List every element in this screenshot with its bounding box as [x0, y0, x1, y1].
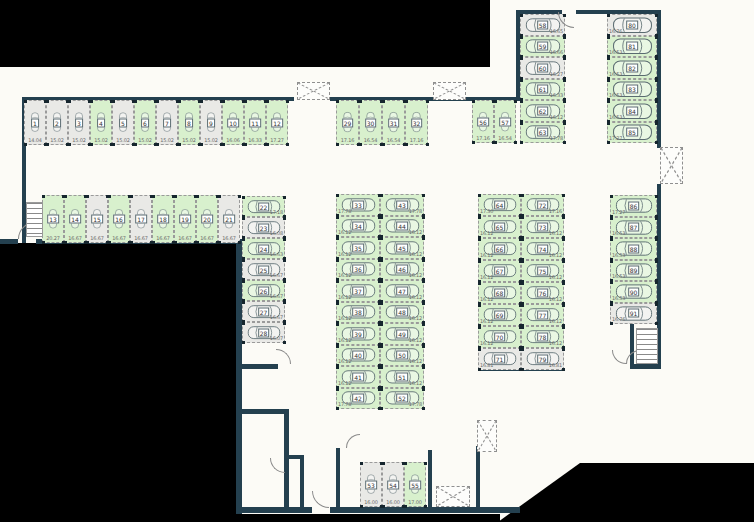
stall-dimension-label: 16.67: [90, 236, 103, 241]
stall-number: 65: [494, 223, 506, 232]
column-marker: [380, 237, 383, 240]
stall-number: 41: [352, 372, 364, 381]
parking-stall-68[interactable]: 6816.12: [478, 282, 521, 304]
column-marker: [655, 57, 658, 60]
column-marker: [472, 141, 475, 144]
parking-stall-27: 2716.67: [242, 301, 285, 322]
stall-dimension-label: 15.02: [72, 138, 85, 143]
stall-number: 72: [537, 201, 549, 210]
parking-stall-40[interactable]: 4016.12: [336, 345, 380, 367]
stall-number: 44: [396, 222, 408, 231]
stall-number: 35: [352, 243, 364, 252]
wall-segment: [630, 364, 661, 369]
column-marker: [244, 100, 247, 103]
parking-stall-85[interactable]: 8517.27: [607, 122, 657, 144]
door-swing-icon: [346, 434, 360, 448]
stall-dimension-label: 16.12: [480, 275, 493, 280]
stall-number: 58: [537, 20, 549, 29]
column-marker: [405, 143, 408, 146]
parking-stall-31[interactable]: 3116.54: [382, 100, 405, 145]
column-marker: [607, 141, 610, 144]
stall-number: 83: [626, 85, 638, 94]
stall-dimension-label: 16.07: [270, 336, 283, 341]
stall-dimension-label: 16.12: [338, 252, 351, 257]
parking-stall-44[interactable]: 4416.12: [380, 216, 424, 238]
parking-stall-20[interactable]: 2016.67: [196, 195, 218, 243]
column-marker: [422, 302, 425, 305]
column-marker: [655, 122, 658, 125]
column-marker: [521, 282, 524, 285]
stall-number: 80: [626, 20, 638, 29]
parking-stall-37[interactable]: 3716.12: [336, 280, 380, 302]
stall-number: 70: [494, 333, 506, 342]
column-marker: [521, 304, 524, 307]
column-marker: [655, 260, 658, 263]
column-marker: [360, 505, 363, 508]
stall-number: 10: [227, 118, 239, 127]
parking-stall-28: 2816.07: [242, 322, 285, 343]
column-marker: [514, 100, 517, 103]
column-marker: [336, 100, 339, 103]
parking-stall-41[interactable]: 4116.12: [336, 366, 380, 388]
column-marker: [86, 195, 89, 198]
stall-dimension-label: 16.12: [549, 275, 562, 280]
column-marker: [426, 100, 429, 103]
parking-stall-14[interactable]: 1416.67: [64, 195, 86, 243]
parking-stall-4[interactable]: 415.02: [90, 100, 112, 145]
parking-stall-83[interactable]: 8316.53: [607, 79, 657, 101]
column-marker: [563, 141, 566, 144]
column-marker: [46, 100, 49, 103]
stall-number: 52: [396, 394, 408, 403]
stall-dimension-label: 17.16: [549, 209, 562, 214]
stall-dimension-label: 17.78: [338, 209, 351, 214]
column-marker: [222, 100, 225, 103]
column-marker: [380, 388, 383, 391]
stall-number: 33: [352, 200, 364, 209]
stall-number: 47: [396, 286, 408, 295]
stall-dimension-label: 15.02: [50, 138, 63, 143]
parking-stall-35[interactable]: 3516.12: [336, 237, 380, 259]
column-marker: [112, 100, 115, 103]
stall-number: 9: [207, 118, 215, 127]
column-marker: [655, 100, 658, 103]
stall-dimension-label: 16.12: [480, 297, 493, 302]
parking-stall-33[interactable]: 3317.78: [336, 194, 380, 216]
parking-stall-59[interactable]: 5916.66: [520, 36, 565, 58]
column-marker: [336, 407, 339, 410]
column-marker: [336, 323, 339, 326]
column-marker: [404, 505, 407, 508]
stall-number: 1: [31, 118, 39, 127]
column-marker: [286, 143, 289, 146]
stall-dimension-label: 16.67: [270, 273, 283, 278]
column-marker: [336, 237, 339, 240]
parking-stall-64[interactable]: 6417.30: [478, 194, 521, 216]
parking-stall-2: 215.02: [46, 100, 68, 145]
column-marker: [424, 462, 427, 465]
parking-stall-88[interactable]: 8816.53: [610, 238, 657, 260]
stall-dimension-label: 16.12: [409, 230, 422, 235]
stall-dimension-label: 16.67: [270, 315, 283, 320]
column-marker: [478, 282, 481, 285]
parking-stall-18[interactable]: 1816.67: [152, 195, 174, 243]
door-swing-icon: [612, 350, 626, 364]
column-marker: [242, 196, 245, 199]
door-swing-icon: [270, 458, 285, 473]
parking-stall-49[interactable]: 4916.12: [380, 323, 424, 345]
parking-stall-87[interactable]: 8716.53: [610, 217, 657, 239]
stall-number: 51: [396, 372, 408, 381]
column-marker: [562, 368, 565, 371]
stall-dimension-label: 16.54: [364, 138, 377, 143]
parking-stall-61[interactable]: 6116.33: [520, 79, 565, 101]
stall-number: 55: [409, 480, 421, 489]
stall-dimension-label: 16.12: [338, 381, 351, 386]
column-marker: [422, 194, 425, 197]
column-marker: [380, 194, 383, 197]
column-marker: [336, 366, 339, 369]
stall-number: 34: [352, 222, 364, 231]
parking-stall-69[interactable]: 6916.12: [478, 304, 521, 326]
stall-number: 62: [537, 106, 549, 115]
parking-stall-15: 1516.67: [86, 195, 108, 243]
column-marker: [520, 57, 523, 60]
column-marker: [422, 259, 425, 262]
column-marker: [607, 100, 610, 103]
parking-stall-65[interactable]: 6516.12: [478, 216, 521, 238]
stall-number: 76: [537, 289, 549, 298]
parking-stall-42[interactable]: 4217.78: [336, 388, 380, 410]
parking-stall-46[interactable]: 4616.12: [380, 259, 424, 281]
parking-stall-53: 5316.00: [360, 462, 382, 507]
column-marker: [610, 195, 613, 198]
column-marker: [24, 143, 27, 146]
column-marker: [242, 322, 245, 325]
column-marker: [380, 345, 383, 348]
column-marker: [562, 282, 565, 285]
wall-segment: [0, 239, 18, 244]
parking-stall-1: 114.04: [24, 100, 46, 145]
parking-stall-66[interactable]: 6616.12: [478, 238, 521, 260]
column-marker: [336, 143, 339, 146]
stall-dimension-label: 16.12: [409, 273, 422, 278]
column-marker: [286, 100, 289, 103]
column-marker: [336, 259, 339, 262]
column-marker: [130, 241, 133, 244]
column-marker: [382, 462, 385, 465]
stall-number: 26: [258, 286, 270, 295]
column-marker: [196, 195, 199, 198]
column-marker: [422, 388, 425, 391]
column-marker: [218, 195, 221, 198]
column-marker: [607, 36, 610, 39]
stall-dimension-label: 16.67: [156, 236, 169, 241]
stall-number: 15: [91, 215, 103, 224]
stall-number: 5: [119, 118, 127, 127]
stall-number: 38: [352, 308, 364, 317]
stall-number: 45: [396, 243, 408, 252]
stall-number: 25: [258, 265, 270, 274]
parking-stall-24[interactable]: 2416.63: [242, 238, 285, 259]
parking-stall-32[interactable]: 3217.16: [405, 100, 428, 145]
column-marker: [336, 280, 339, 283]
stall-number: 68: [494, 289, 506, 298]
parking-stall-55[interactable]: 5517.00: [404, 462, 426, 507]
parking-stall-36[interactable]: 3616.12: [336, 259, 380, 281]
parking-stall-77[interactable]: 7716.12: [521, 304, 564, 326]
column-marker: [68, 143, 71, 146]
parking-stall-79: 7916.81: [521, 348, 564, 370]
stall-number: 89: [628, 266, 640, 275]
stall-dimension-label: 16.12: [549, 253, 562, 258]
column-marker: [562, 260, 565, 263]
column-marker: [242, 259, 245, 262]
parking-stall-84[interactable]: 8416.53: [607, 100, 657, 122]
column-marker: [336, 302, 339, 305]
column-marker: [478, 238, 481, 241]
column-marker: [655, 217, 658, 220]
column-marker: [156, 100, 159, 103]
stall-number: 90: [628, 287, 640, 296]
parking-stall-82[interactable]: 8216.53: [607, 57, 657, 79]
stall-number: 77: [537, 311, 549, 320]
column-marker: [563, 36, 566, 39]
column-marker: [380, 259, 383, 262]
parking-stall-72[interactable]: 7217.16: [521, 194, 564, 216]
column-marker: [283, 217, 286, 220]
stall-number: 71: [494, 355, 506, 364]
column-marker: [472, 100, 475, 103]
column-marker: [520, 122, 523, 125]
column-marker: [42, 195, 45, 198]
column-marker: [382, 505, 385, 508]
parking-stall-43[interactable]: 4317.78: [380, 194, 424, 216]
parking-stall-7: 715.02: [156, 100, 178, 145]
stall-number: 11: [249, 118, 261, 127]
parking-stall-78[interactable]: 7816.12: [521, 326, 564, 348]
column-marker: [422, 237, 425, 240]
column-marker: [134, 100, 137, 103]
parking-stall-70[interactable]: 7016.12: [478, 326, 521, 348]
stall-dimension-label: 17.27: [270, 138, 283, 143]
parking-stall-45[interactable]: 4516.12: [380, 237, 424, 259]
stall-number: 87: [628, 223, 640, 232]
parking-stall-91: 9116.76: [610, 303, 657, 325]
stairs-icon: [636, 328, 658, 364]
column-marker: [222, 143, 225, 146]
column-marker: [380, 407, 383, 410]
column-marker: [424, 505, 427, 508]
parking-stall-19[interactable]: 1916.67: [174, 195, 196, 243]
column-marker: [655, 322, 658, 325]
column-marker: [380, 280, 383, 283]
column-marker: [521, 368, 524, 371]
stall-dimension-label: 16.12: [338, 316, 351, 321]
parking-stall-38[interactable]: 3816.12: [336, 302, 380, 324]
parking-stall-81[interactable]: 8116.53: [607, 36, 657, 58]
column-marker: [520, 141, 523, 144]
parking-stall-73[interactable]: 7316.12: [521, 216, 564, 238]
stall-dimension-label: 17.78: [409, 209, 422, 214]
parking-stall-10[interactable]: 1016.06: [222, 100, 244, 145]
parking-stall-51[interactable]: 5116.12: [380, 366, 424, 388]
masked-region: [236, 514, 500, 522]
parking-stall-30[interactable]: 3016.54: [359, 100, 382, 145]
column-marker: [521, 348, 524, 351]
stall-dimension-label: 17.27: [612, 210, 625, 215]
parking-stall-86[interactable]: 8617.27: [610, 195, 657, 217]
wall-segment: [336, 448, 340, 512]
stall-dimension-label: 16.67: [112, 236, 125, 241]
stall-dimension-label: 20.27: [46, 236, 59, 241]
parking-stall-90[interactable]: 9016.53: [610, 281, 657, 303]
stall-number: 23: [258, 223, 270, 232]
stall-number: 8: [185, 118, 193, 127]
stall-number: 12: [271, 118, 283, 127]
parking-stall-12[interactable]: 1217.27: [266, 100, 288, 145]
column-marker: [283, 196, 286, 199]
stall-dimension-label: 16.12: [409, 295, 422, 300]
column-marker: [422, 345, 425, 348]
parking-stall-16[interactable]: 1616.67: [108, 195, 130, 243]
column-marker: [156, 143, 159, 146]
stall-dimension-label: 16.12: [549, 231, 562, 236]
stall-dimension-label: 16.12: [338, 338, 351, 343]
parking-stall-63[interactable]: 6317.78: [520, 122, 565, 144]
stall-dimension-label: 16.81: [480, 363, 493, 368]
parking-stall-26[interactable]: 2616.67: [242, 280, 285, 301]
stall-number: 63: [537, 128, 549, 137]
parking-stall-22[interactable]: 2217.18: [242, 196, 285, 217]
parking-stall-74[interactable]: 7416.12: [521, 238, 564, 260]
stall-dimension-label: 14.04: [28, 138, 41, 143]
column-marker: [380, 323, 383, 326]
column-marker: [336, 194, 339, 197]
column-marker: [520, 100, 523, 103]
parking-stall-11[interactable]: 1116.33: [244, 100, 266, 145]
parking-stall-52[interactable]: 5217.78: [380, 388, 424, 410]
column-marker: [426, 143, 429, 146]
parking-stall-9: 915.02: [200, 100, 222, 145]
column-marker: [336, 388, 339, 391]
parking-stall-39[interactable]: 3916.12: [336, 323, 380, 345]
stall-number: 75: [537, 267, 549, 276]
stall-number: 2: [53, 118, 61, 127]
column-marker: [562, 326, 565, 329]
parking-stall-54: 5416.00: [382, 462, 404, 507]
stall-number: 91: [628, 309, 640, 318]
stall-dimension-label: 17.16: [476, 136, 489, 141]
stall-number: 4: [97, 118, 105, 127]
elevator-shaft: [297, 82, 330, 100]
stall-number: 30: [365, 118, 377, 127]
column-marker: [563, 14, 566, 17]
parking-stall-47[interactable]: 4716.12: [380, 280, 424, 302]
stall-number: 73: [537, 223, 549, 232]
parking-stall-50[interactable]: 5016.12: [380, 345, 424, 367]
column-marker: [520, 14, 523, 17]
stall-dimension-label: 17.16: [410, 138, 423, 143]
parking-stall-67[interactable]: 6716.12: [478, 260, 521, 282]
column-marker: [359, 100, 362, 103]
column-marker: [336, 345, 339, 348]
stall-dimension-label: 16.12: [338, 359, 351, 364]
column-marker: [521, 194, 524, 197]
parking-stall-76[interactable]: 7616.12: [521, 282, 564, 304]
column-marker: [655, 281, 658, 284]
stall-dimension-label: 16.53: [609, 72, 622, 77]
elevator-shaft: [433, 82, 466, 100]
stall-number: 40: [352, 351, 364, 360]
parking-stall-17: 1716.67: [130, 195, 152, 243]
column-marker: [283, 238, 286, 241]
column-marker: [112, 143, 115, 146]
stall-dimension-label: 16.00: [386, 500, 399, 505]
column-marker: [607, 57, 610, 60]
column-marker: [42, 241, 45, 244]
parking-stall-75[interactable]: 7516.12: [521, 260, 564, 282]
stall-dimension-label: 16.53: [612, 274, 625, 279]
column-marker: [610, 217, 613, 220]
stall-dimension-label: 16.66: [550, 50, 563, 55]
wall-segment: [236, 364, 278, 369]
column-marker: [68, 100, 71, 103]
column-marker: [64, 195, 67, 198]
column-marker: [607, 14, 610, 17]
stall-number: 85: [626, 128, 638, 137]
elevator-shaft: [477, 420, 497, 452]
parking-stall-56[interactable]: 5617.16: [472, 100, 494, 143]
stall-dimension-label: 16.12: [550, 115, 563, 120]
column-marker: [521, 260, 524, 263]
column-marker: [90, 100, 93, 103]
column-marker: [655, 303, 658, 306]
parking-stall-57[interactable]: 5716.54: [494, 100, 516, 143]
stall-number: 22: [258, 202, 270, 211]
parking-stall-8[interactable]: 815.02: [178, 100, 200, 145]
parking-stall-6[interactable]: 615.02: [134, 100, 156, 145]
parking-stall-89[interactable]: 8916.53: [610, 260, 657, 282]
column-marker: [520, 79, 523, 82]
stall-number: 57: [499, 117, 511, 126]
parking-stall-34[interactable]: 3416.12: [336, 216, 380, 238]
column-marker: [238, 195, 241, 198]
stall-dimension-label: 16.27: [550, 72, 563, 77]
stall-number: 27: [258, 307, 270, 316]
door-swing-icon: [312, 491, 329, 508]
stall-number: 14: [69, 215, 81, 224]
stairs-icon: [26, 202, 43, 237]
parking-stall-13[interactable]: 1320.27: [42, 195, 64, 243]
column-marker: [610, 260, 613, 263]
stall-dimension-label: 16.33: [550, 93, 563, 98]
column-marker: [242, 301, 245, 304]
column-marker: [478, 304, 481, 307]
stall-dimension-label: 16.12: [409, 381, 422, 386]
parking-stall-29[interactable]: 2917.16: [336, 100, 359, 145]
column-marker: [24, 100, 27, 103]
parking-stall-62[interactable]: 6216.12: [520, 100, 565, 122]
stall-dimension-label: 16.12: [480, 341, 493, 346]
parking-stall-48[interactable]: 4816.12: [380, 302, 424, 324]
column-marker: [242, 341, 245, 344]
stall-dimension-label: 16.76: [612, 317, 625, 322]
stall-dimension-label: 17.00: [408, 500, 421, 505]
stall-dimension-label: 16.12: [338, 230, 351, 235]
column-marker: [521, 216, 524, 219]
column-marker: [152, 195, 155, 198]
